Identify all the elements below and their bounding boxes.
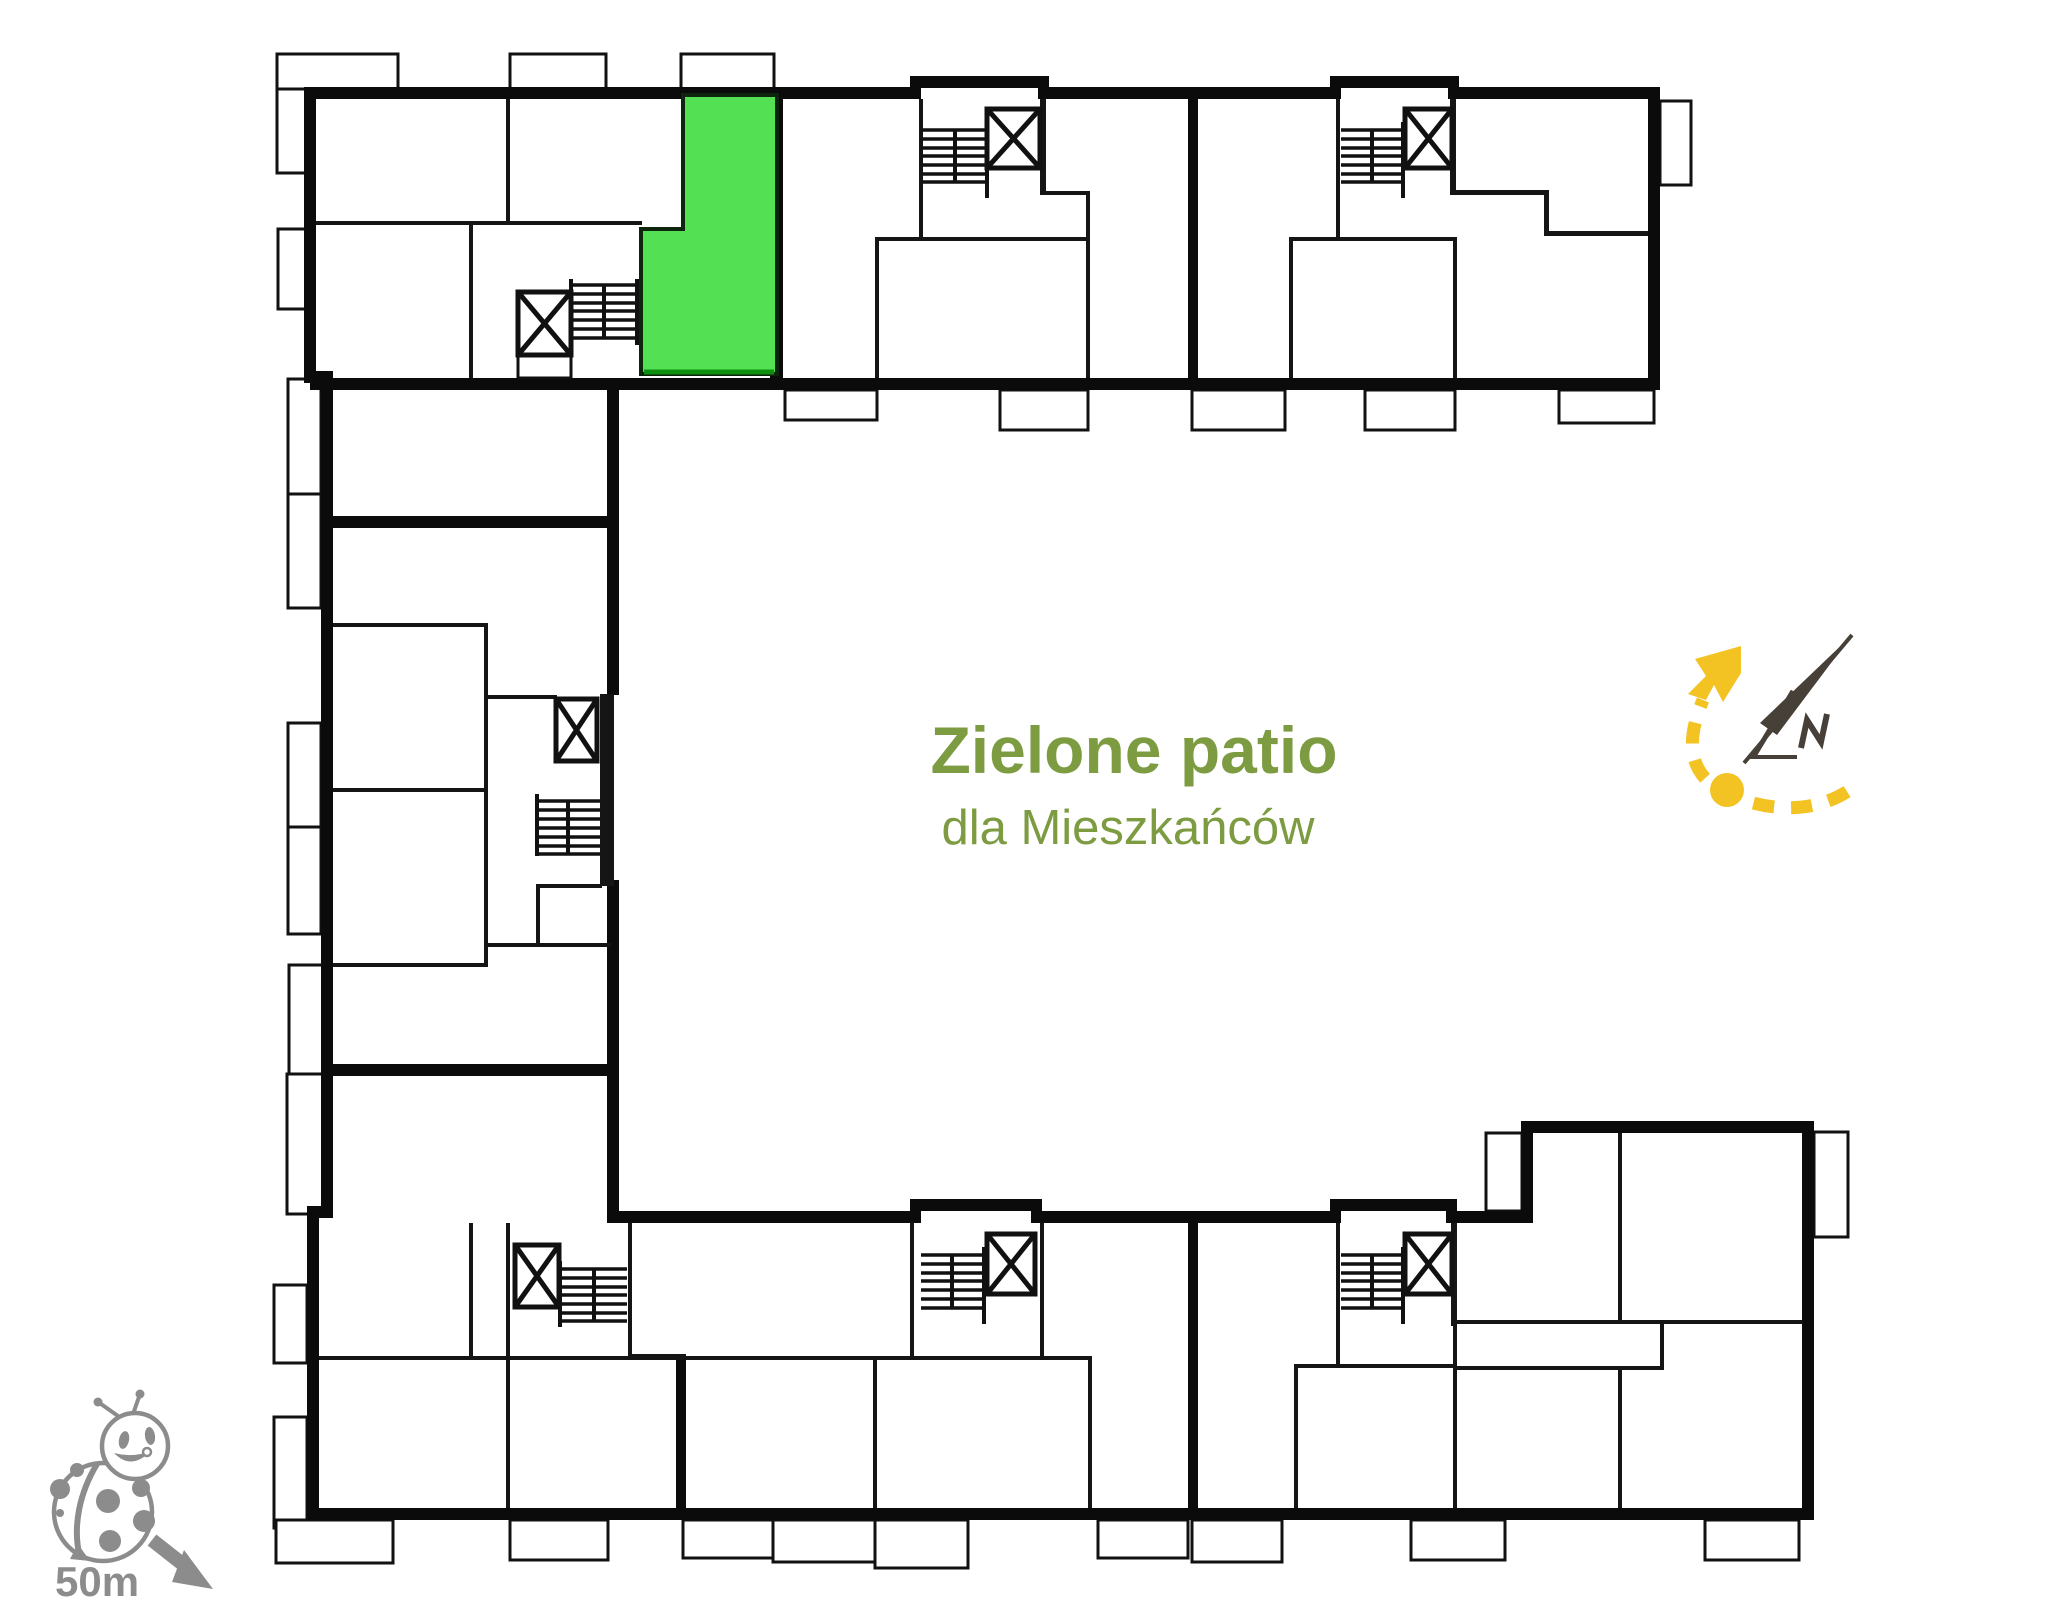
svg-text:50m: 50m <box>55 1558 139 1605</box>
svg-text:dla Mieszkańców: dla Mieszkańców <box>941 801 1315 855</box>
svg-text:Zielone patio: Zielone patio <box>930 713 1337 787</box>
